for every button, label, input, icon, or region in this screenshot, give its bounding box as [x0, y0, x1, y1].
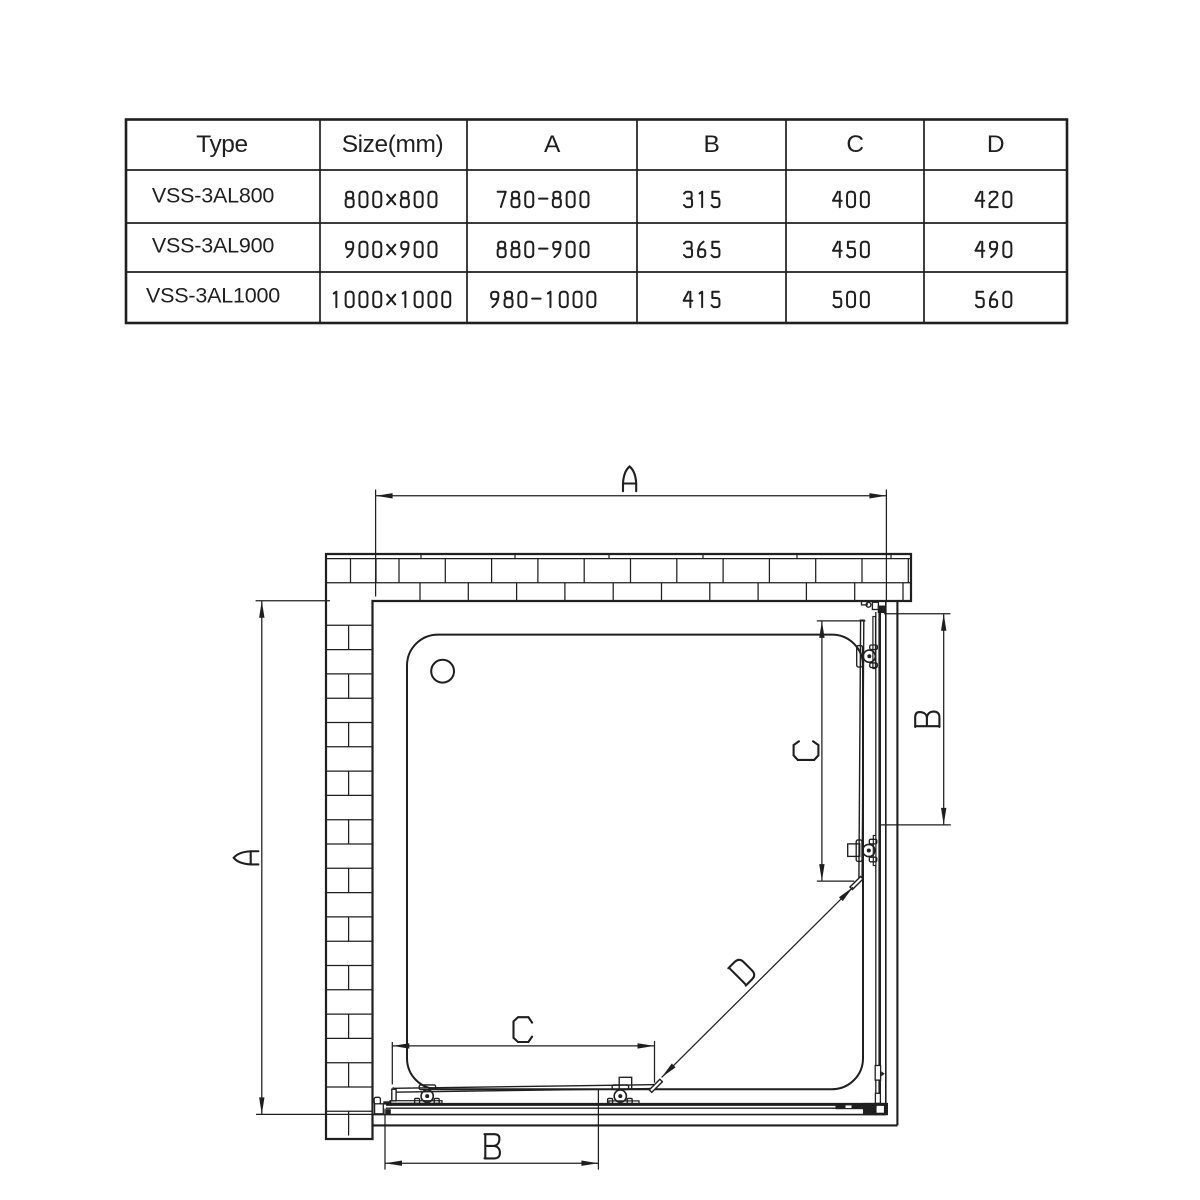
svg-text:D: D: [987, 131, 1004, 158]
svg-text:B: B: [704, 131, 720, 158]
svg-text:VSS-3AL800: VSS-3AL800: [152, 184, 275, 208]
svg-text:Size(mm): Size(mm): [342, 131, 444, 158]
svg-text:C: C: [846, 131, 863, 158]
svg-text:Type: Type: [196, 131, 248, 158]
svg-text:VSS-3AL1000: VSS-3AL1000: [146, 284, 280, 308]
svg-text:A: A: [544, 131, 561, 158]
svg-text:VSS-3AL900: VSS-3AL900: [152, 234, 275, 258]
